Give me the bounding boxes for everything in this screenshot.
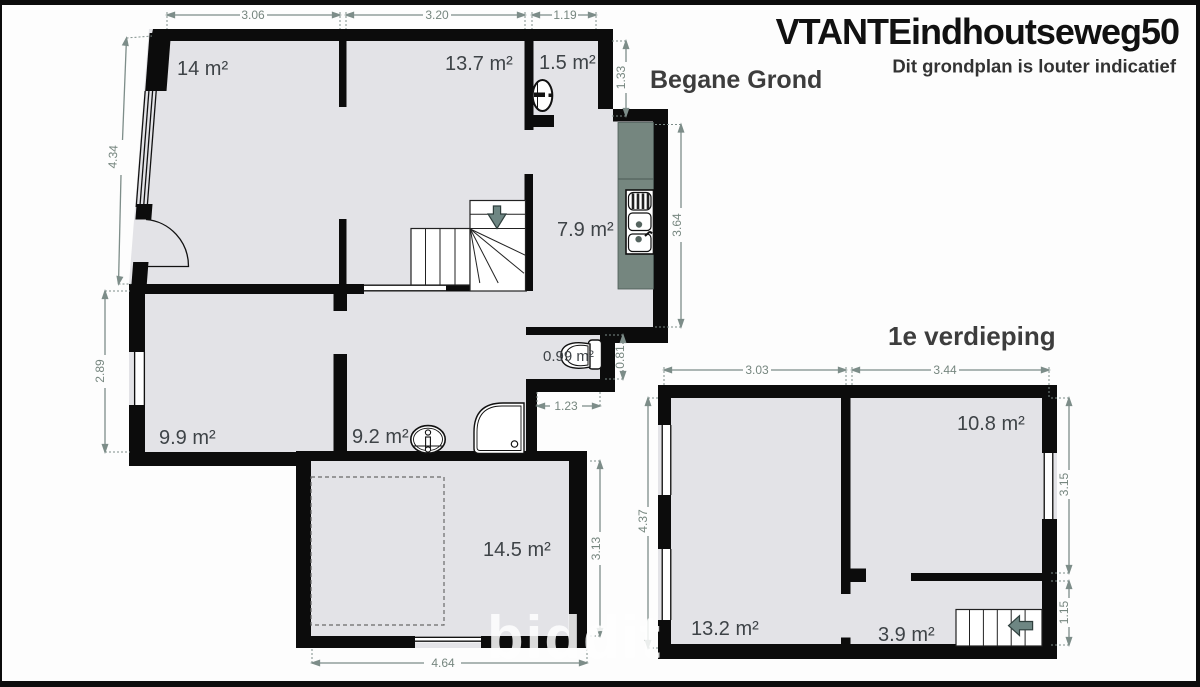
svg-text:0.81: 0.81 bbox=[613, 345, 627, 369]
svg-text:1.19: 1.19 bbox=[553, 8, 577, 22]
svg-text:13.7 m²: 13.7 m² bbox=[445, 53, 513, 75]
svg-text:1.33: 1.33 bbox=[614, 65, 628, 89]
svg-text:4.34: 4.34 bbox=[105, 144, 120, 168]
svg-text:3.03: 3.03 bbox=[745, 363, 769, 377]
svg-text:2.89: 2.89 bbox=[93, 359, 107, 383]
svg-text:14 m²: 14 m² bbox=[177, 58, 228, 80]
svg-text:1.5 m²: 1.5 m² bbox=[539, 52, 596, 74]
svg-text:1e verdieping: 1e verdieping bbox=[888, 321, 1056, 351]
svg-text:Begane Grond: Begane Grond bbox=[650, 66, 822, 94]
svg-text:9.2 m²: 9.2 m² bbox=[352, 426, 409, 448]
svg-text:10.8 m²: 10.8 m² bbox=[957, 413, 1025, 435]
svg-text:3.13: 3.13 bbox=[589, 536, 603, 560]
svg-text:VTANTEindhoutseweg50: VTANTEindhoutseweg50 bbox=[776, 11, 1179, 52]
svg-text:1.15: 1.15 bbox=[1057, 600, 1071, 624]
svg-text:3.20: 3.20 bbox=[425, 8, 449, 22]
svg-text:14.5 m²: 14.5 m² bbox=[483, 539, 551, 561]
svg-text:biddit: biddit bbox=[487, 604, 662, 671]
svg-text:3.06: 3.06 bbox=[241, 8, 265, 22]
svg-text:Dit grondplan is louter indica: Dit grondplan is louter indicatief bbox=[892, 56, 1177, 77]
svg-text:4.64: 4.64 bbox=[431, 656, 455, 670]
svg-text:0.99 m²: 0.99 m² bbox=[543, 348, 594, 365]
svg-text:3.9 m²: 3.9 m² bbox=[878, 624, 935, 646]
svg-text:3.15: 3.15 bbox=[1057, 472, 1071, 496]
svg-text:7.9 m²: 7.9 m² bbox=[557, 219, 614, 241]
svg-text:1.23: 1.23 bbox=[554, 399, 578, 413]
svg-text:13.2 m²: 13.2 m² bbox=[691, 618, 759, 640]
svg-text:3.44: 3.44 bbox=[933, 363, 957, 377]
svg-text:4.37: 4.37 bbox=[636, 509, 650, 533]
svg-text:3.64: 3.64 bbox=[670, 213, 684, 237]
svg-text:9.9 m²: 9.9 m² bbox=[159, 427, 216, 449]
